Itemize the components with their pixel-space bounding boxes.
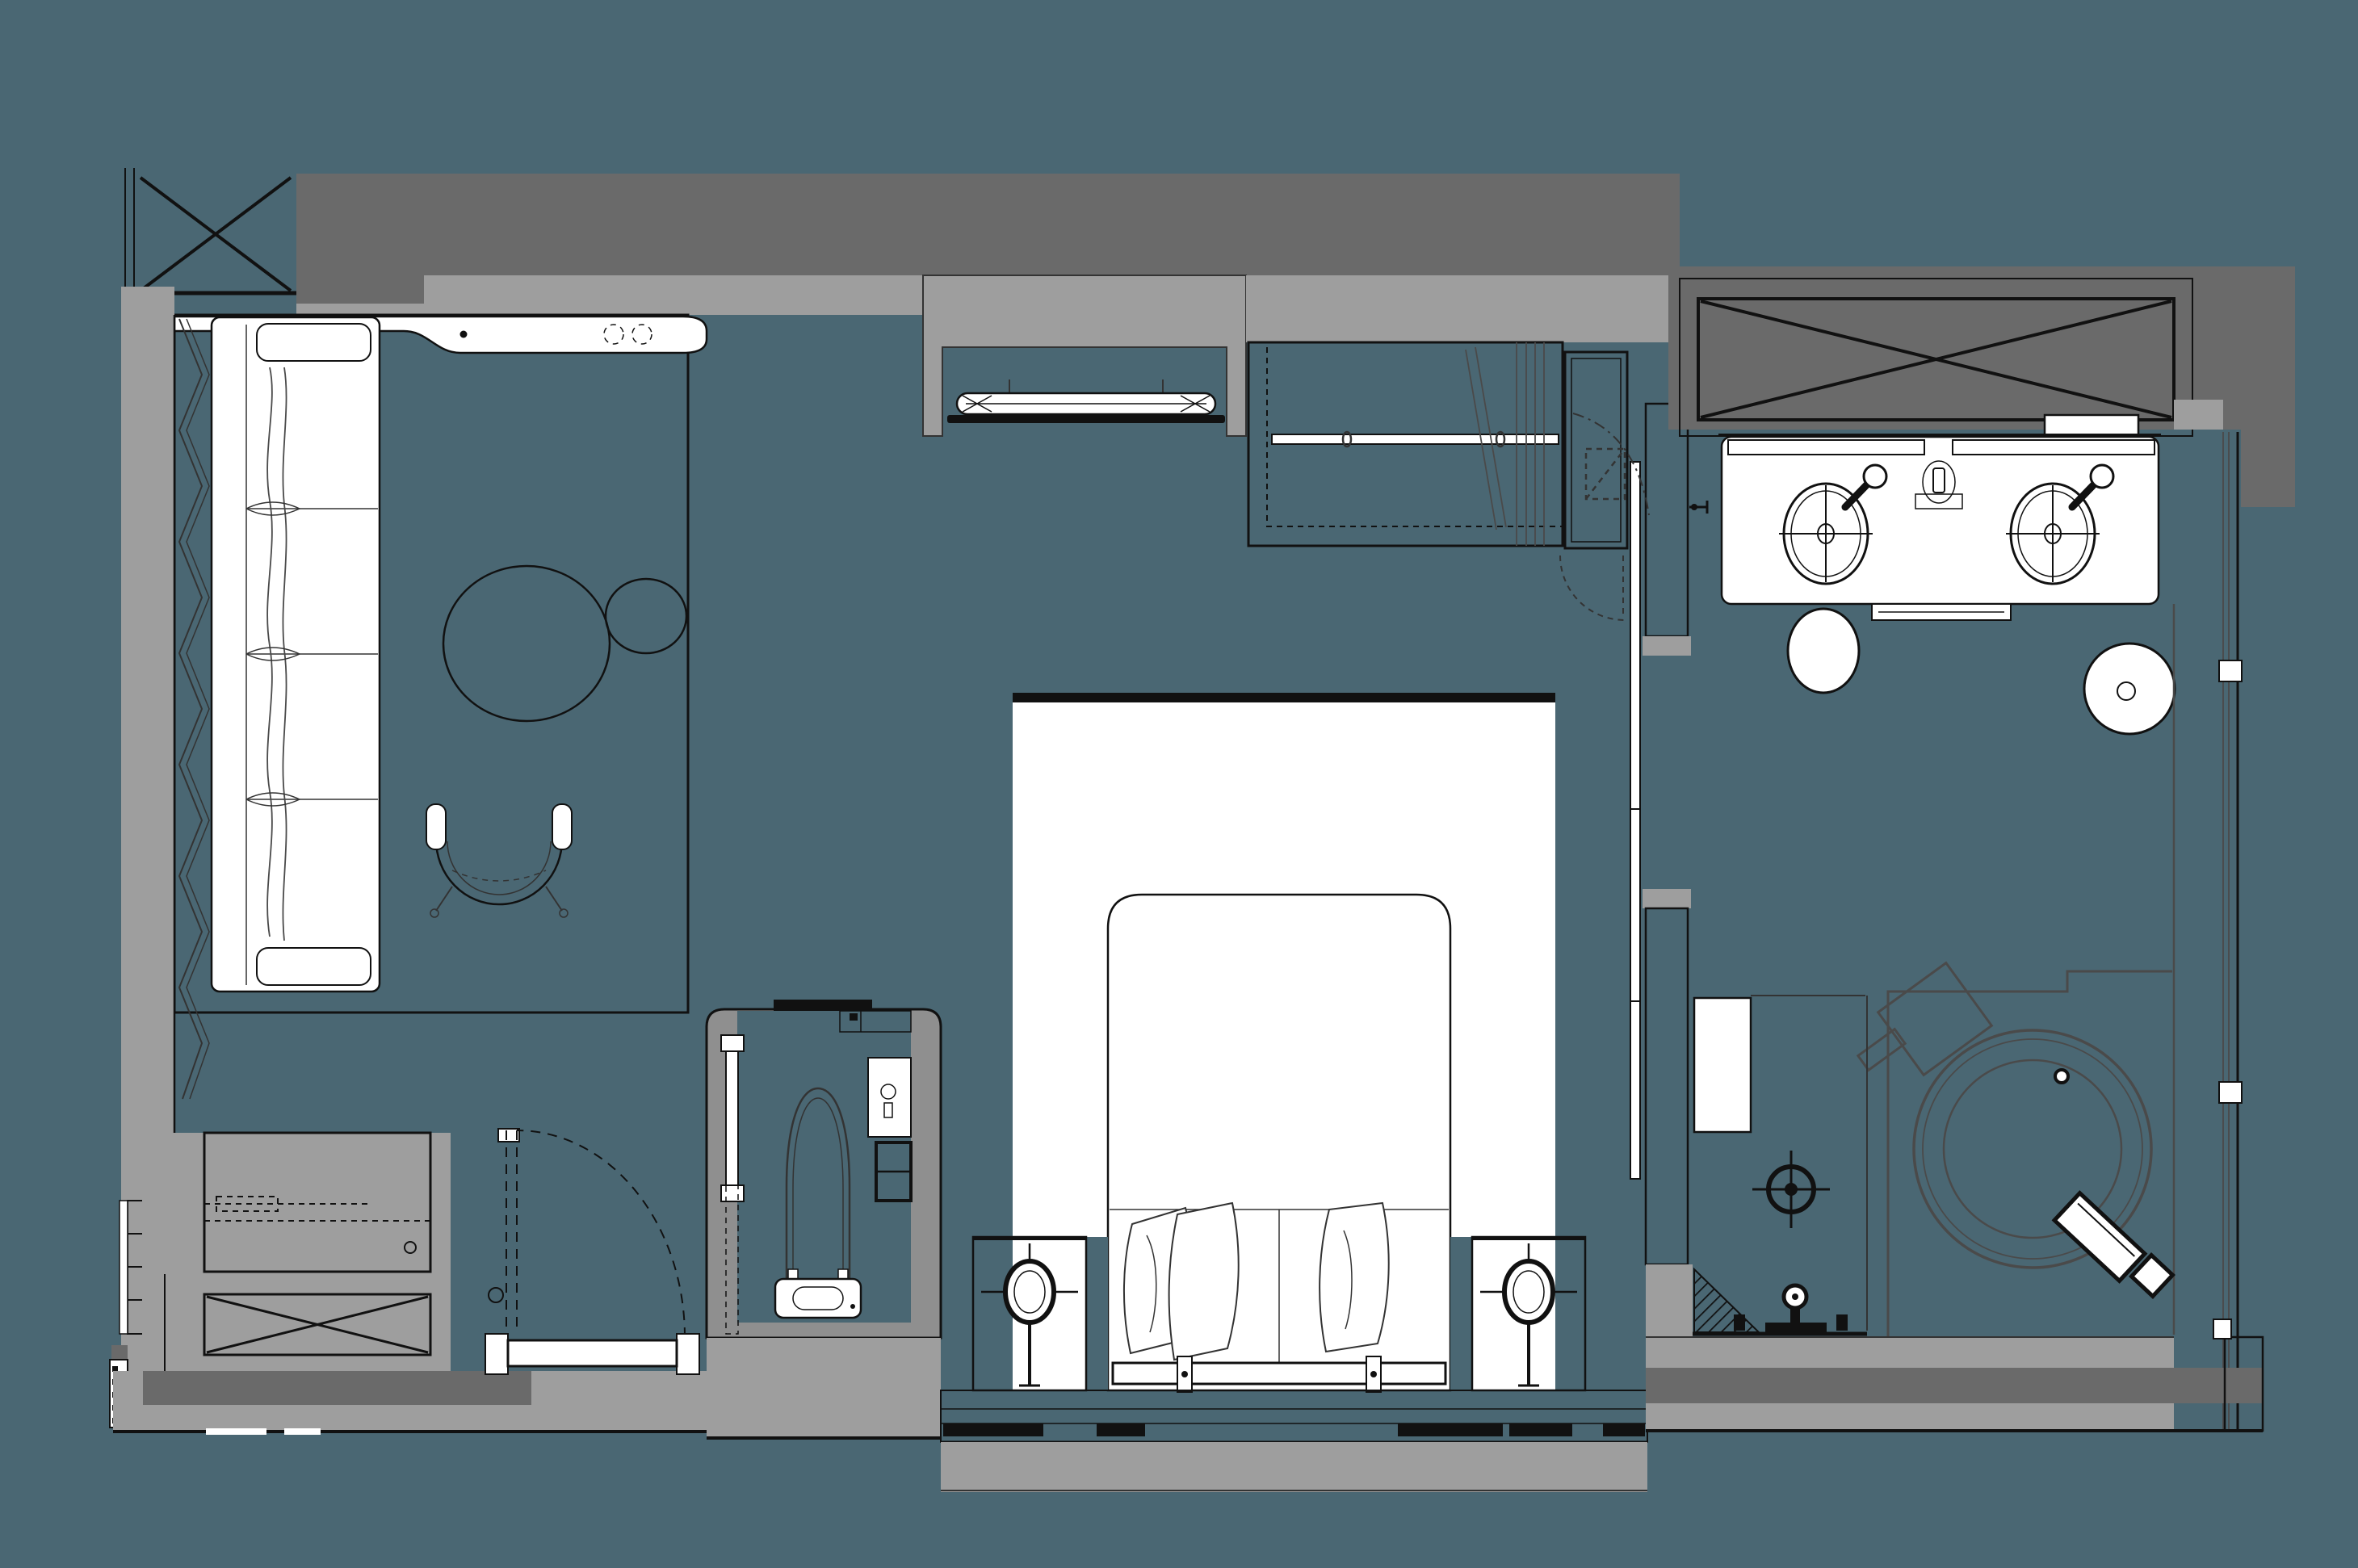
wc-hand-basin bbox=[868, 1058, 911, 1137]
headboard-rail bbox=[1113, 1363, 1445, 1384]
mirror-strip-right bbox=[1953, 440, 2155, 455]
desk-outlet-dot bbox=[460, 331, 468, 338]
round-side-table bbox=[2084, 644, 2175, 734]
shower-bench bbox=[1694, 998, 1751, 1132]
tub-drain-knob bbox=[2055, 1070, 2068, 1083]
bedroom bbox=[973, 693, 1585, 1392]
vanity-stool bbox=[1788, 609, 1859, 693]
floor-plan bbox=[0, 0, 2358, 1568]
wc-lintel bbox=[774, 1000, 872, 1011]
four-seat-sofa bbox=[212, 317, 380, 992]
headboard-wall-line bbox=[1013, 693, 1555, 702]
mirror-strip-left bbox=[1728, 440, 1924, 455]
wc-room bbox=[707, 1000, 941, 1440]
bathroom-entry-door-leaf bbox=[2045, 415, 2138, 436]
sofa-armrest-top bbox=[257, 324, 371, 361]
entry-exterior-band bbox=[113, 1371, 711, 1435]
floor-plan-canvas bbox=[0, 0, 2358, 1568]
wardrobe-hanging-rod bbox=[1272, 434, 1559, 444]
entry-door-leaf bbox=[508, 1340, 677, 1366]
wc-pocket-door bbox=[726, 1051, 738, 1185]
sofa-armrest-bottom bbox=[257, 948, 371, 985]
luggage-room bbox=[142, 1133, 451, 1375]
